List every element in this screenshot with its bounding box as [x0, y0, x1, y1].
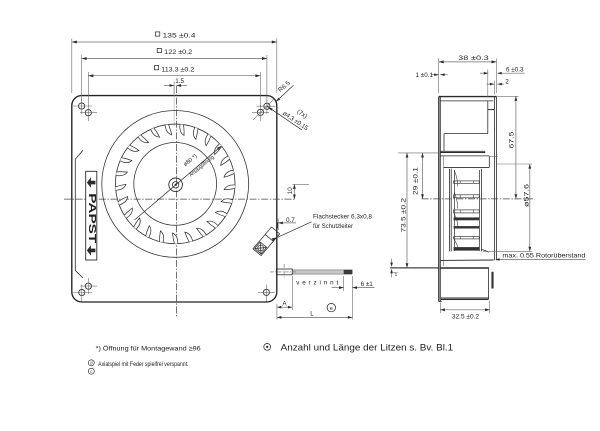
svg-text:e: e — [330, 306, 333, 312]
svg-text:38 ±0.3: 38 ±0.3 — [458, 55, 489, 62]
svg-text:122 ±0.2: 122 ±0.2 — [164, 49, 192, 56]
svg-text:max. 0.55 Rotorüberstand: max. 0.55 Rotorüberstand — [502, 252, 585, 259]
svg-text:135 ±0.4: 135 ±0.4 — [163, 33, 196, 40]
svg-text:0.7: 0.7 — [286, 217, 295, 224]
svg-text:Axialspiel mit Feder spielfrei: Axialspiel mit Feder spielfrei verspannt… — [98, 361, 189, 368]
svg-text:29 ±0.1: 29 ±0.1 — [412, 166, 419, 195]
svg-text:67.5: 67.5 — [509, 131, 516, 149]
svg-text:32.5 ±0.2: 32.5 ±0.2 — [452, 313, 480, 320]
svg-text:1.5: 1.5 — [175, 78, 184, 85]
svg-text:*) Öffnung für Montagewand ≥96: *) Öffnung für Montagewand ≥96 — [96, 344, 202, 352]
svg-text:für Schutzleiter: für Schutzleiter — [313, 223, 353, 230]
svg-text:ø57.6: ø57.6 — [523, 183, 530, 207]
svg-text:6 ±1: 6 ±1 — [361, 281, 374, 288]
svg-text:L: L — [310, 311, 314, 318]
svg-text:PAPST: PAPST — [86, 193, 97, 243]
svg-text:Flachstecker 6,3x0,8: Flachstecker 6,3x0,8 — [313, 213, 372, 220]
svg-text:1 ±0.1: 1 ±0.1 — [416, 72, 434, 79]
svg-text:1: 1 — [395, 272, 398, 277]
svg-text:6 ±0.3: 6 ±0.3 — [506, 66, 524, 73]
svg-text:2: 2 — [505, 78, 509, 85]
svg-text:10: 10 — [287, 187, 294, 195]
svg-text:113.3 ±0.2: 113.3 ±0.2 — [161, 66, 194, 73]
svg-text:Anzahl und Länge der Litzen s.: Anzahl und Länge der Litzen s. Bv. Bl.1 — [281, 342, 454, 352]
svg-text:73.5 ±0.2: 73.5 ±0.2 — [401, 197, 408, 232]
